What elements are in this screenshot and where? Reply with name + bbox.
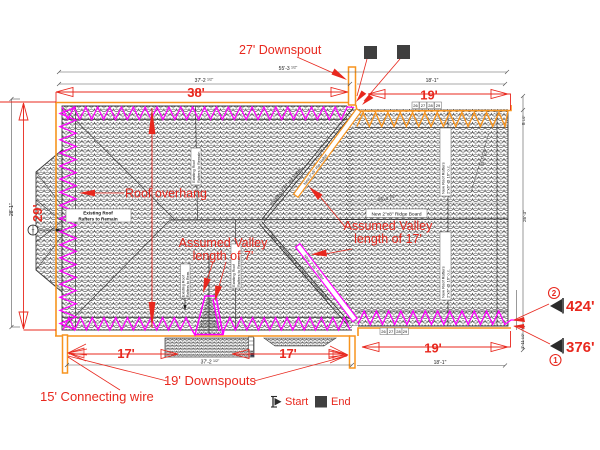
svg-text:28: 28 xyxy=(396,329,401,334)
svg-text:27' Downspout: 27' Downspout xyxy=(239,43,322,57)
svg-text:376': 376' xyxy=(566,339,595,356)
svg-text:18'-1": 18'-1" xyxy=(434,360,447,366)
svg-text:26: 26 xyxy=(381,329,386,334)
svg-text:26'-3": 26'-3" xyxy=(522,210,527,222)
svg-text:29': 29' xyxy=(30,204,45,222)
svg-text:28: 28 xyxy=(428,103,433,108)
svg-text:27: 27 xyxy=(389,329,394,334)
svg-text:1'-11 1/2": 1'-11 1/2" xyxy=(520,333,525,349)
svg-text:New 2"x8" Ridge Board: New 2"x8" Ridge Board xyxy=(371,211,421,217)
svg-text:15' Connecting wire: 15' Connecting wire xyxy=(40,389,154,404)
svg-text:End: End xyxy=(331,396,351,408)
svg-text:38': 38' xyxy=(187,85,205,100)
svg-text:Rafters to Remain: Rafters to Remain xyxy=(78,217,118,222)
svg-text:28'-1": 28'-1" xyxy=(9,203,15,216)
svg-text:Start: Start xyxy=(285,396,308,408)
svg-text:19': 19' xyxy=(420,88,438,103)
svg-text:27: 27 xyxy=(421,103,426,108)
svg-text:2: 2 xyxy=(552,289,557,298)
svg-text:Rafters to Rem.: Rafters to Rem. xyxy=(186,271,190,297)
svg-text:Rafters to Remain: Rafters to Remain xyxy=(196,152,201,183)
svg-text:T: T xyxy=(32,228,35,233)
svg-text:18'-1": 18'-1" xyxy=(426,78,439,84)
svg-text:Roof overhang: Roof overhang xyxy=(125,187,207,201)
svg-text:2"x6" @ 16" o.c.: 2"x6" @ 16" o.c. xyxy=(446,165,451,194)
svg-text:Assumed Valley: Assumed Valley xyxy=(344,219,433,233)
svg-text:26: 26 xyxy=(413,103,418,108)
svg-text:Existing Roof: Existing Roof xyxy=(83,211,113,216)
svg-text:19': 19' xyxy=(424,341,442,356)
svg-text:17': 17' xyxy=(279,346,297,361)
svg-text:Assumed Valley: Assumed Valley xyxy=(179,236,268,250)
svg-text:1: 1 xyxy=(553,356,558,365)
svg-text:8 1/2": 8 1/2" xyxy=(521,114,526,125)
svg-text:Existing Roof: Existing Roof xyxy=(182,274,186,297)
svg-text:29: 29 xyxy=(403,329,408,334)
svg-text:17': 17' xyxy=(117,346,135,361)
svg-text:29: 29 xyxy=(436,103,441,108)
svg-text:length of 17': length of 17' xyxy=(354,232,422,246)
svg-text:424': 424' xyxy=(566,298,595,315)
svg-text:length of 7': length of 7' xyxy=(193,249,254,263)
svg-text:2"x6" @ 16" o.c.: 2"x6" @ 16" o.c. xyxy=(446,269,451,298)
svg-text:19' Downspouts: 19' Downspouts xyxy=(164,373,257,388)
